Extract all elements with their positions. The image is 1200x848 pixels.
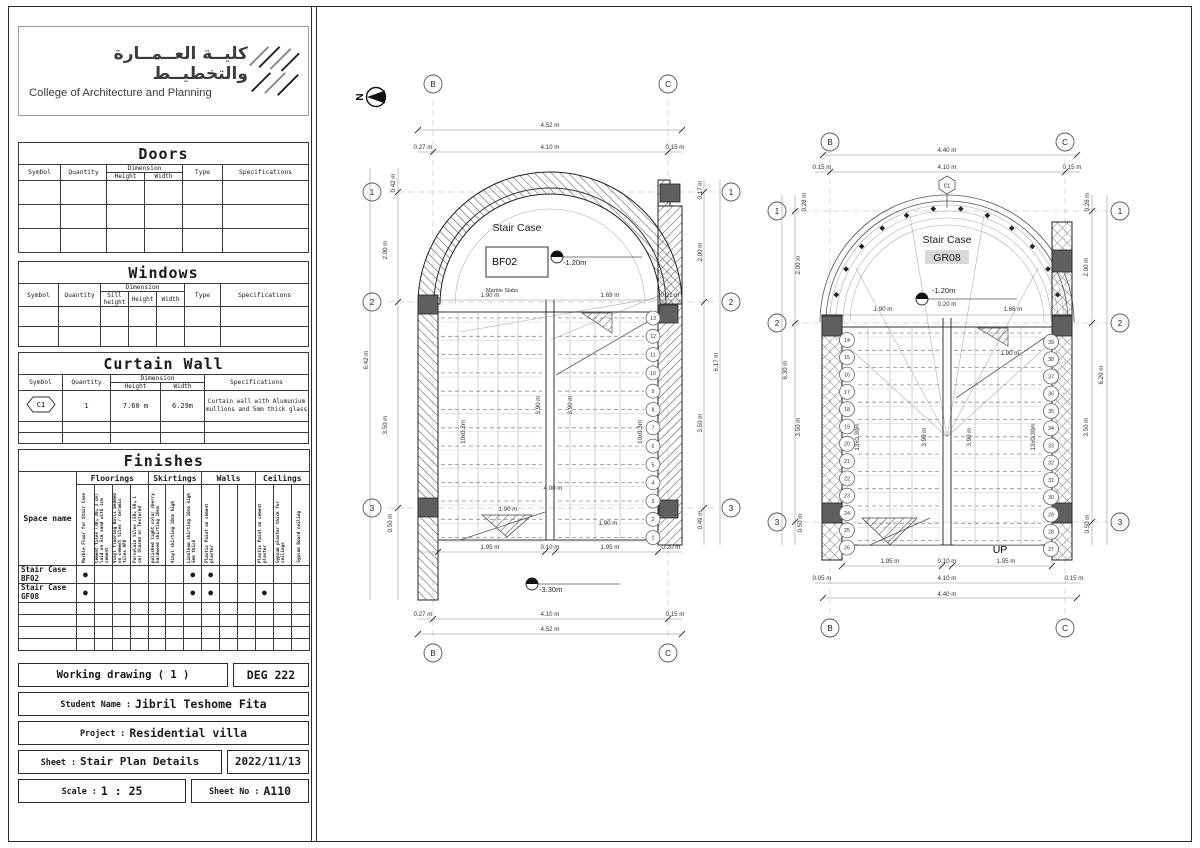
sidebar: كليــة العــمــارة والتخطيــط College of…	[18, 26, 309, 803]
dim-label: 4.10 m	[938, 164, 957, 171]
doors-title: Doors	[19, 143, 309, 165]
col-width: Width	[157, 292, 185, 307]
dim-label: 6.17 m	[713, 353, 720, 372]
project-box: Project : Residential villa	[18, 721, 309, 745]
col-height: Height	[129, 292, 157, 307]
finish-dot: ●	[202, 584, 220, 602]
svg-text:2: 2	[1118, 319, 1123, 328]
finishes-row: Stair CaseGF08●●●●	[19, 584, 310, 602]
project-label: Project :	[80, 728, 125, 738]
svg-text:22: 22	[844, 476, 850, 482]
col-space-name: Space name	[19, 472, 77, 566]
svg-text:31: 31	[1048, 478, 1054, 484]
svg-text:B: B	[430, 80, 435, 89]
finish-cell	[255, 566, 273, 584]
dim-label: 3.90 m	[921, 428, 928, 447]
windows-title: Windows	[19, 262, 309, 284]
col-specifications: Specifications	[223, 165, 309, 181]
finish-dot: ●	[202, 566, 220, 584]
col-specifications: Specifications	[221, 284, 309, 307]
dim-label: 4.10 m	[938, 575, 957, 582]
svg-text:30: 30	[1048, 495, 1054, 501]
svg-text:32: 32	[1048, 461, 1054, 467]
working-drawing-box: Working drawing ( 1 )	[18, 663, 228, 687]
svg-text:28: 28	[1048, 530, 1054, 536]
svg-text:1: 1	[729, 188, 734, 197]
sheet-no: A110	[263, 784, 291, 798]
finishes-group-skirtings: Skirtings	[148, 472, 202, 485]
finish-cell	[291, 584, 309, 602]
student-name: Jibril Teshome Fita	[135, 697, 267, 711]
col-symbol: Symbol	[19, 375, 63, 391]
finishes-group-ceilings: Ceilings	[255, 472, 309, 485]
college-name-arabic: كليــة العــمــارة والتخطيــط	[29, 44, 248, 84]
svg-text:8: 8	[652, 407, 655, 413]
sheet-label: Sheet :	[41, 757, 76, 767]
dim-label: 3.90 m	[535, 396, 542, 415]
svg-text:2: 2	[775, 319, 780, 328]
sheet-no-box: Sheet No : A110	[191, 779, 309, 803]
up-label: UP	[993, 544, 1008, 556]
col-symbol: Symbol	[19, 165, 61, 181]
project-name: Residential villa	[129, 726, 247, 740]
dim-label: 6.42 m	[363, 351, 370, 370]
svg-text:C: C	[1062, 624, 1068, 633]
dim-label: 1.90 m	[1001, 350, 1020, 357]
dim-label: 13x0.30m	[1030, 423, 1037, 450]
date-box: 2022/11/13	[227, 750, 309, 774]
finishes-column-header	[238, 485, 256, 566]
svg-text:1: 1	[775, 207, 780, 216]
dim-label: 4.10 m	[541, 144, 560, 151]
college-name-english: College of Architecture and Planning	[29, 87, 248, 99]
dim-label: 4.40 m	[938, 591, 957, 598]
svg-text:3: 3	[370, 504, 375, 513]
dim-label: 3.50 m	[382, 416, 389, 435]
dim-label: 0.28 m	[1084, 193, 1091, 212]
doors-table: Doors Symbol Quantity Dimension Type Spe…	[18, 142, 309, 253]
finish-cell	[148, 566, 166, 584]
dim-label: 1.95 m	[997, 558, 1016, 565]
svg-text:B: B	[827, 624, 832, 633]
logo-hatch-icon	[248, 43, 300, 99]
svg-text:2: 2	[370, 298, 375, 307]
finishes-column-header: Gypsum Board ceiling	[291, 485, 309, 566]
svg-text:1: 1	[1118, 207, 1123, 216]
dim-label: 0.15 m	[813, 164, 832, 171]
dim-label: 2.00 m	[697, 243, 704, 262]
svg-text:B: B	[430, 649, 435, 658]
dim-label: 0.15 m	[666, 611, 685, 618]
svg-text:20: 20	[844, 442, 850, 448]
svg-text:C: C	[665, 649, 671, 658]
svg-text:25: 25	[844, 528, 850, 534]
finish-cell	[238, 584, 256, 602]
level-label: -1.20m	[563, 258, 586, 267]
working-drawing-label: Working drawing ( 1 )	[57, 669, 190, 681]
col-quantity: Quantity	[59, 284, 101, 307]
level-label: -1.20m	[932, 286, 955, 295]
svg-text:16: 16	[844, 373, 850, 379]
dim-label: 0.27 m	[414, 611, 433, 618]
student-label: Student Name :	[60, 699, 131, 709]
dim-label: 3.90 m	[567, 396, 574, 415]
svg-text:17: 17	[844, 390, 850, 396]
level-label: -3.30m	[539, 585, 562, 594]
finishes-column-header: Plastic Paint on cement plaster	[202, 485, 220, 566]
svg-text:36: 36	[1048, 392, 1054, 398]
dim-label: 0.49 m	[697, 511, 704, 530]
curtain-wall-arc	[820, 195, 1074, 437]
finishes-title: Finishes	[19, 450, 310, 472]
dim-label: 1.90 m	[499, 506, 518, 513]
finish-cell	[130, 566, 148, 584]
finish-cell	[112, 584, 130, 602]
col-specifications: Specifications	[205, 375, 309, 391]
finish-cell	[238, 566, 256, 584]
svg-text:2: 2	[729, 298, 734, 307]
dim-label: 4.52 m	[541, 626, 560, 633]
dim-label: 1.69 m	[601, 292, 620, 299]
dim-label: 1.90 m	[599, 520, 618, 527]
svg-text:39: 39	[1048, 340, 1054, 346]
svg-text:C1: C1	[944, 184, 951, 190]
room-tag: GR08	[933, 252, 961, 264]
col-width: Width	[161, 383, 205, 391]
dim-label: 0.50 m	[1084, 515, 1091, 534]
dim-label: 1.95 m	[481, 544, 500, 551]
dim-label: 6.20 m	[1098, 366, 1105, 385]
dim-label: 3.50 m	[697, 414, 704, 433]
finishes-column-header: Gypsum plaster thick for ceilings	[273, 485, 291, 566]
mullion-mark	[843, 266, 849, 272]
dim-label: 0.28 m	[801, 193, 808, 212]
mullion-mark	[985, 213, 991, 219]
course-code: DEG 222	[247, 668, 295, 682]
dim-label: 0.10 m	[938, 558, 957, 565]
finish-cell	[273, 566, 291, 584]
svg-text:C1: C1	[36, 401, 44, 409]
svg-text:37: 37	[1048, 374, 1054, 380]
svg-text:B: B	[827, 138, 832, 147]
dim-label: 0.20 m	[662, 544, 681, 551]
dim-label: 0.10 m	[541, 544, 560, 551]
col-dimension: Dimension	[111, 375, 205, 383]
svg-text:1: 1	[370, 188, 375, 197]
dim-label: 0.20 m	[938, 301, 957, 308]
dim-label: 0.21 m	[661, 292, 680, 299]
svg-text:13: 13	[650, 316, 656, 322]
room-title: Stair Case	[922, 234, 971, 246]
dim-label: 1.95 m	[881, 558, 900, 565]
stair-plan-left: BBCC112233	[363, 75, 740, 662]
windows-table: Windows Symbol Quantity Dimension Type S…	[18, 261, 309, 347]
curtain-wall-table: Curtain Wall Symbol Quantity Dimension S…	[18, 352, 309, 444]
svg-text:1: 1	[652, 536, 655, 542]
svg-text:34: 34	[1048, 426, 1054, 432]
right-wall	[658, 206, 682, 545]
finishes-column-header: Vinyl flooring Rolls bedded on cement ti…	[112, 485, 130, 566]
finish-cell	[166, 566, 184, 584]
finishes-column-header: Marble Floor for Stair Case	[77, 485, 95, 566]
finishes-column-header: Vinyl skirting 10cm high	[166, 485, 184, 566]
sheet-name: Stair Plan Details	[80, 755, 199, 768]
course-box: DEG 222	[233, 663, 309, 687]
finishes-group-floorings: Floorings	[77, 472, 149, 485]
svg-text:19: 19	[844, 424, 850, 430]
finishes-column-header: Porcelain tiles (50×50×1 cm) Glazed or T…	[130, 485, 148, 566]
dim-label: 3.50 m	[1083, 418, 1090, 437]
dim-label: 13x0.30m	[854, 423, 861, 450]
finish-dot: ●	[184, 584, 202, 602]
dim-label: 0.15 m	[1065, 575, 1084, 582]
dim-label: 4.10 m	[541, 611, 560, 618]
finish-cell	[94, 566, 112, 584]
cw-height: 7.60 m	[111, 391, 161, 422]
svg-text:27: 27	[1048, 547, 1054, 553]
dim-label: 0.42 m	[390, 174, 397, 193]
svg-text:6: 6	[652, 444, 655, 450]
svg-text:C: C	[665, 80, 671, 89]
student-box: Student Name : Jibril Teshome Fita	[18, 692, 309, 716]
col-height: Height	[107, 173, 145, 181]
dim-label: 0.17 m	[697, 181, 704, 200]
sheet-no-label: Sheet No :	[209, 786, 259, 796]
svg-text:24: 24	[844, 511, 850, 517]
dim-label: 3.50 m	[795, 418, 802, 437]
svg-text:26: 26	[844, 546, 850, 552]
dim-label: 1.66 m	[1004, 306, 1023, 313]
dim-label: 10x0.3m	[637, 420, 644, 444]
col-quantity: Quantity	[61, 165, 107, 181]
svg-text:38: 38	[1048, 357, 1054, 363]
dim-label: 0.50 m	[797, 514, 804, 533]
finish-cell	[273, 584, 291, 602]
svg-text:3: 3	[775, 518, 780, 527]
svg-text:C: C	[1062, 138, 1068, 147]
cw-quantity: 1	[63, 391, 111, 422]
finish-cell	[130, 584, 148, 602]
college-logo: كليــة العــمــارة والتخطيــط College of…	[18, 26, 309, 116]
date-value: 2022/11/13	[235, 755, 301, 768]
cw-width: 6.29m	[161, 391, 205, 422]
drawing-area: N BBCC112233	[310, 0, 1200, 848]
svg-text:5: 5	[652, 462, 655, 468]
dim-label: 0.05 m	[813, 575, 832, 582]
mullion-mark	[904, 213, 910, 219]
finish-dot: ●	[77, 566, 95, 584]
svg-text:N: N	[355, 93, 366, 100]
dim-label: 0.15 m	[1063, 164, 1082, 171]
finish-cell	[112, 566, 130, 584]
col-quantity: Quantity	[63, 375, 111, 391]
col-type: Type	[183, 165, 223, 181]
finish-dot: ●	[184, 566, 202, 584]
svg-text:11: 11	[650, 353, 655, 359]
finish-cell	[94, 584, 112, 602]
dim-label: 0.27 m	[414, 144, 433, 151]
finish-cell	[166, 584, 184, 602]
scale-value: 1 : 25	[101, 784, 143, 798]
dim-label: 1.90 m	[481, 292, 500, 299]
finishes-row: Stair CaseBF02●●●	[19, 566, 310, 584]
finishes-column-header: Cement tiles (30×30×3 cm) laid on 5cm sa…	[94, 485, 112, 566]
svg-text:2: 2	[652, 517, 655, 523]
drawing-sheet: كليــة العــمــارة والتخطيــط College of…	[0, 0, 1200, 848]
svg-text:29: 29	[1048, 512, 1054, 518]
stair-plan-right: BBCC112233	[768, 133, 1129, 637]
mullion-mark	[833, 292, 839, 298]
finish-dot: ●	[77, 584, 95, 602]
svg-text:14: 14	[844, 338, 850, 344]
dim-label: 4.52 m	[541, 122, 560, 129]
sheet-box: Sheet : Stair Plan Details	[18, 750, 222, 774]
dim-label: 6.30 m	[782, 361, 789, 380]
svg-text:3: 3	[652, 499, 655, 505]
col-height: Height	[111, 383, 161, 391]
mullion-mark	[1045, 266, 1051, 272]
dim-label: 2.00 m	[382, 241, 389, 260]
col-dimension: Dimension	[101, 284, 185, 292]
dim-label: 4.00 m	[544, 485, 563, 492]
dim-label: 4.40 m	[938, 147, 957, 154]
dim-label: 0.50 m	[387, 514, 394, 533]
svg-text:4: 4	[652, 481, 655, 487]
scale-box: Scale : 1 : 25	[18, 779, 186, 803]
left-wall	[418, 304, 438, 600]
dim-label: 1.90 m	[874, 306, 893, 313]
col-sill-height: Sill height	[101, 292, 129, 307]
finishes-group-walls: Walls	[202, 472, 256, 485]
dim-label: 1.95 m	[601, 544, 620, 551]
north-arrow-icon: N	[355, 88, 386, 107]
svg-text:12: 12	[650, 334, 656, 340]
finish-cell	[220, 566, 238, 584]
dim-label: 2.00 m	[795, 256, 802, 275]
svg-text:18: 18	[844, 407, 850, 413]
c1-tag: C1	[939, 176, 955, 208]
svg-text:10: 10	[650, 371, 656, 377]
scale-label: Scale :	[62, 786, 97, 796]
finishes-column-header	[220, 485, 238, 566]
dim-label: 2.00 m	[1083, 258, 1090, 277]
col-dimension: Dimension	[107, 165, 183, 173]
dim-label: 10x0.3m	[460, 420, 467, 444]
finishes-column-header: Plastic Paint on cement plaster	[255, 485, 273, 566]
col-width: Width	[145, 173, 183, 181]
col-type: Type	[185, 284, 221, 307]
finishes-table: Finishes Space nameFlooringsSkirtingsWal…	[18, 449, 310, 651]
c1-hexagon-symbol: C1	[26, 396, 56, 413]
cw-symbol-cell: C1	[19, 391, 63, 422]
dim-label: 3.90 m	[966, 428, 973, 447]
svg-text:35: 35	[1048, 409, 1054, 415]
col-symbol: Symbol	[19, 284, 59, 307]
svg-text:7: 7	[652, 426, 655, 432]
svg-text:3: 3	[729, 504, 734, 513]
room-title: Stair Case	[492, 222, 541, 234]
title-block: Working drawing ( 1 ) DEG 222 Student Na…	[18, 663, 309, 803]
svg-text:15: 15	[844, 355, 850, 361]
svg-text:33: 33	[1048, 443, 1054, 449]
finish-dot: ●	[255, 584, 273, 602]
room-tag: BF02	[492, 256, 517, 268]
svg-text:21: 21	[844, 459, 850, 465]
svg-text:23: 23	[844, 494, 850, 500]
curtain-wall-title: Curtain Wall	[19, 353, 309, 375]
finish-cell	[148, 584, 166, 602]
dim-label: 0.15 m	[666, 144, 685, 151]
finish-cell	[291, 566, 309, 584]
finishes-column-header: Linoleum skirting 10cm high 5mm thick	[184, 485, 202, 566]
cw-spec: Curtain wall with Alumunium mullions and…	[205, 391, 309, 422]
finish-cell	[220, 584, 238, 602]
svg-text:3: 3	[1118, 518, 1123, 527]
finishes-column-header: polished light color cherry hardwood ski…	[148, 485, 166, 566]
svg-text:9: 9	[652, 389, 655, 395]
